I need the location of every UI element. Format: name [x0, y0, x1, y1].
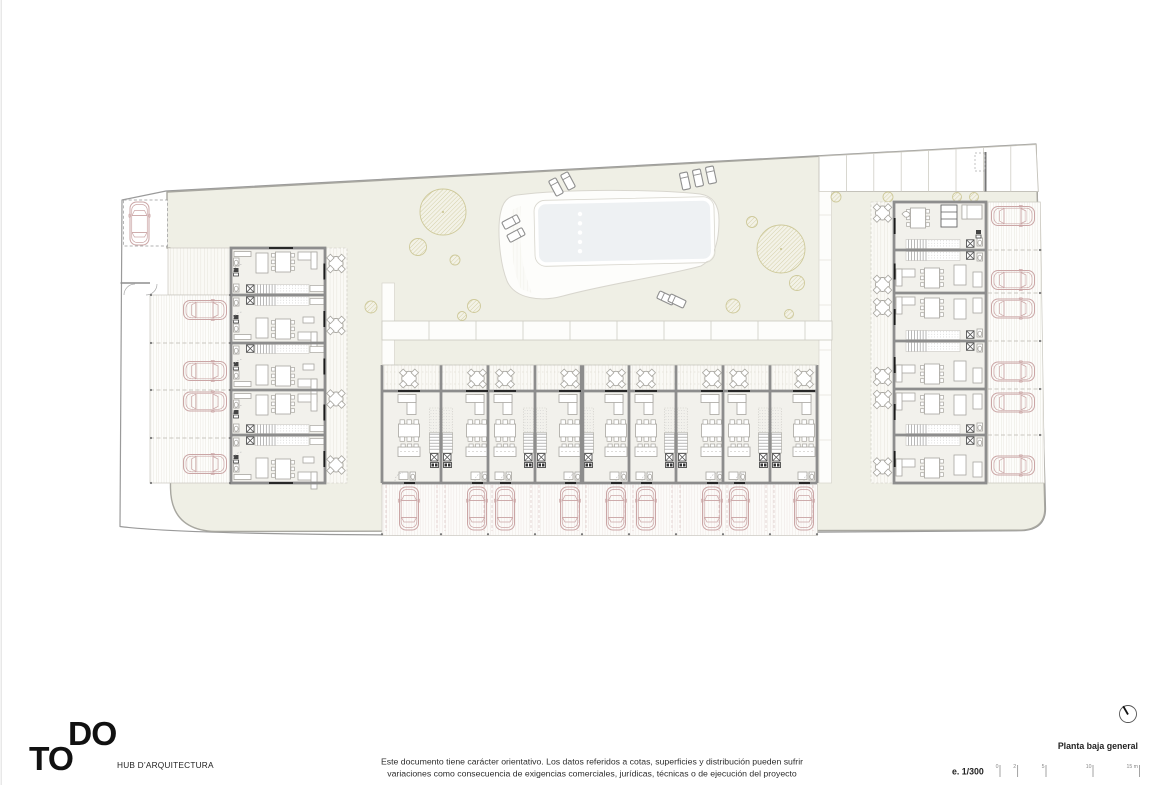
svg-text:e. 1/300: e. 1/300 [952, 767, 984, 777]
svg-text:Este documento tiene carácter: Este documento tiene carácter orientativ… [381, 757, 803, 767]
svg-text:2: 2 [1013, 764, 1016, 770]
svg-text:15 m: 15 m [1126, 764, 1138, 770]
svg-text:0: 0 [996, 764, 999, 770]
svg-text:HUB D’ARQUITECTURA: HUB D’ARQUITECTURA [117, 760, 214, 770]
svg-text:5: 5 [1042, 764, 1045, 770]
svg-text:DO: DO [68, 716, 116, 753]
svg-text:variaciones como consecuencia: variaciones como consecuencia de exigenc… [387, 769, 797, 779]
svg-text:10: 10 [1086, 764, 1092, 770]
svg-text:Planta baja general: Planta baja general [1058, 741, 1138, 751]
svg-text:TO: TO [29, 741, 73, 778]
